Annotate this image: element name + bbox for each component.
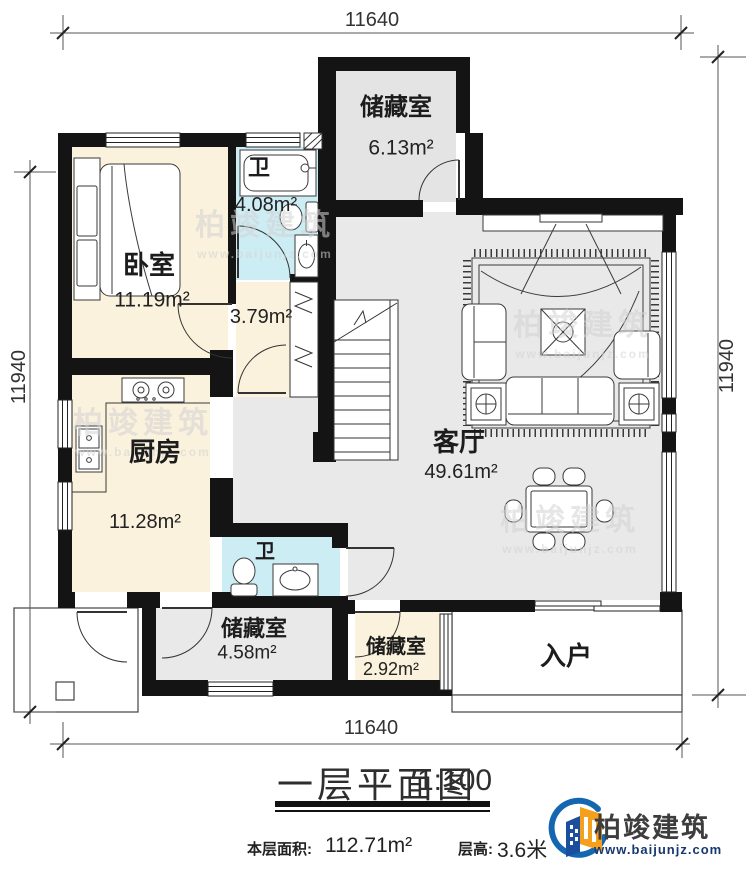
hatched-column [304,133,322,149]
bath-bottom-label: 卫 [255,542,275,562]
bedroom-area: 11.19m² [114,290,189,311]
living-area: 49.61m² [424,462,497,482]
window-storage-small-east [440,614,452,690]
entry-label: 入户 [540,643,592,669]
sink-bottom [273,564,318,596]
title-underline-thin [275,810,490,812]
kitchen-floor [72,375,210,592]
toilet-bottom [231,558,257,596]
brand-website: www.baijunjz.com [594,842,722,857]
dimension-bottom: 11640 [344,718,398,738]
window-kitchen-west-1 [58,400,72,448]
side-porch [14,608,138,712]
brand-name: 柏竣建筑 [594,806,710,845]
storage-top-label: 储藏室 [360,96,432,120]
sofa-main [506,377,614,425]
dimension-right: 11940 [717,339,737,393]
kitchen-label: 厨房 [129,439,181,465]
window-living-east-3 [662,452,676,592]
dimension-left: 11940 [9,350,29,404]
hallway-floor [236,282,290,397]
floor-area-label: 本层面积: [247,838,312,859]
window-bedroom-top [106,133,180,147]
storage-top-area: 6.13m² [368,138,433,159]
staircase [334,300,398,460]
bath-top-area: 4.08m² [235,195,297,215]
storage-small-label: 储藏室 [366,637,426,657]
living-label: 客厅 [433,429,485,455]
window-living-east-2 [662,414,676,432]
sofa-right [614,331,660,379]
window-living-east-1 [662,252,676,398]
hallway-area: 3.79m² [230,307,292,327]
storage-small-area: 2.92m² [363,660,419,678]
kitchen-sink [76,426,102,472]
storage-mid-label: 储藏室 [221,618,287,640]
end-table-right [619,383,659,425]
stove [122,378,184,402]
title-underline-thick [275,801,490,807]
floor-height-label: 层高: [458,838,493,859]
kitchen-area: 11.28m² [109,512,181,532]
drawing-scale: 1:100 [417,764,492,798]
window-kitchen-west-2 [58,482,72,530]
closet [290,282,318,397]
floorplan-drawing [0,0,750,874]
floor-height-value: 3.6米 [497,834,547,864]
bedroom-label: 卧室 [123,252,175,278]
floorplan-sheet: 柏竣建筑 www.baijunjz.com 柏竣建筑 www.baijunjz.… [0,0,750,874]
coffee-table [541,309,585,355]
end-table-left [466,383,506,425]
dimension-top: 11640 [345,10,399,30]
window-storage-mid-south [208,682,273,696]
window-bath-top [246,133,300,147]
bath-top-label: 卫 [248,157,270,179]
sink-top [295,235,318,277]
sofa-left [462,304,506,380]
storage-mid-area: 4.58m² [217,644,276,663]
floor-area-value: 112.71m² [325,834,412,858]
